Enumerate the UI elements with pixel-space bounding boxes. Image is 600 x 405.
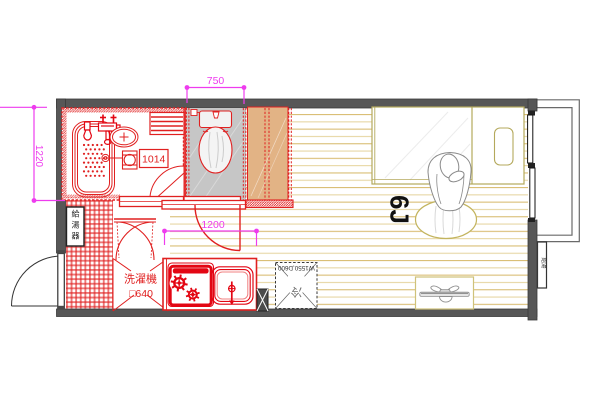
svg-text:6J: 6J	[385, 195, 415, 224]
svg-text:W1550,D600: W1550,D600	[277, 264, 314, 271]
svg-text:給湯: 給湯	[540, 257, 548, 269]
svg-text:冷: 冷	[291, 285, 303, 298]
svg-text:洗濯機: 洗濯機	[124, 272, 157, 286]
svg-text:1200: 1200	[201, 219, 225, 231]
svg-text:1014: 1014	[142, 154, 166, 166]
svg-text:給湯器: 給湯器	[72, 209, 80, 241]
svg-text:□640: □640	[129, 288, 153, 300]
svg-text:1220: 1220	[33, 145, 44, 168]
svg-text:750: 750	[207, 75, 225, 87]
